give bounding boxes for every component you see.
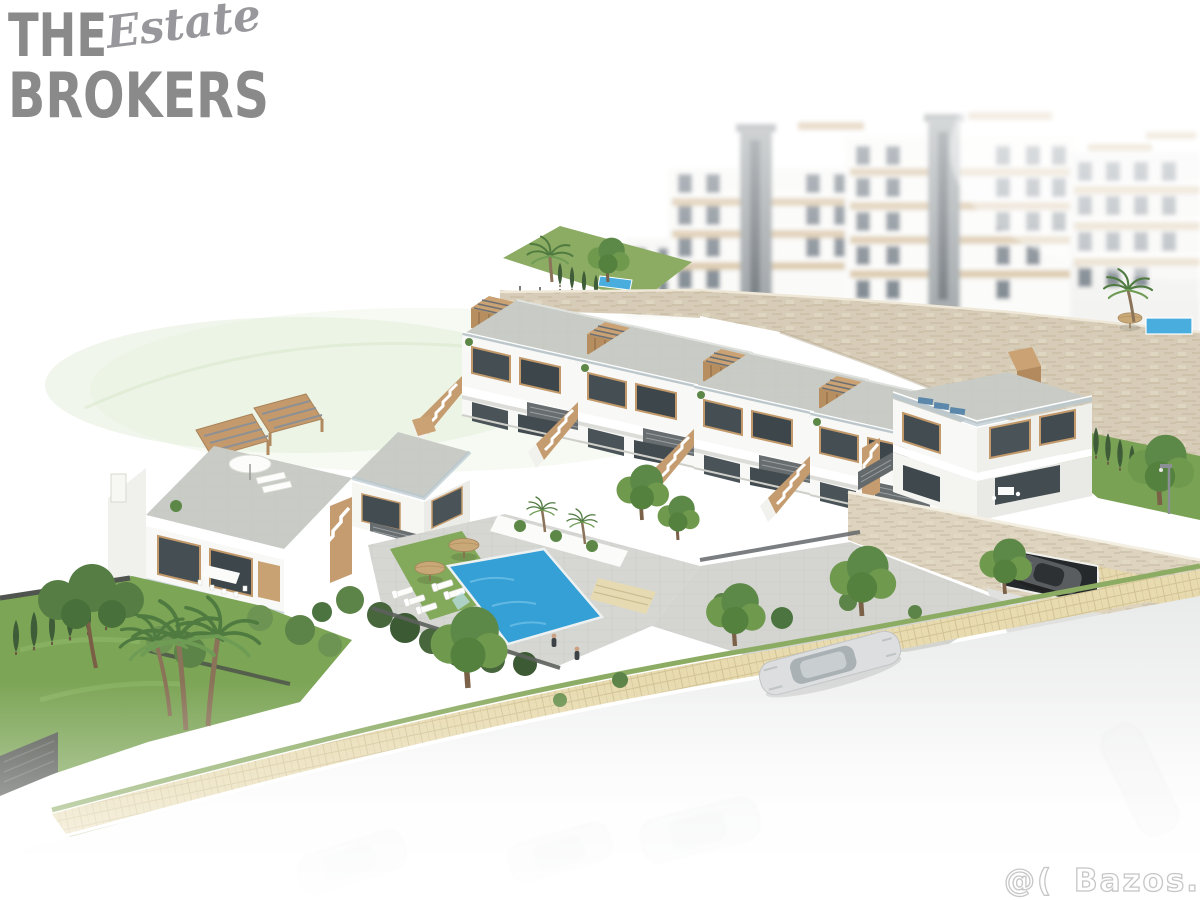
walking-person bbox=[575, 647, 580, 660]
walking-person bbox=[552, 634, 557, 647]
bazos-watermark: @( Bazos.cz bbox=[1004, 863, 1200, 899]
screenshot-root: THE Estate BROKERS @( Bazos.cz bbox=[0, 0, 1200, 900]
sun-umbrella bbox=[415, 562, 445, 585]
rendered-scene: THE Estate BROKERS @( Bazos.cz bbox=[0, 0, 1200, 900]
background-pool bbox=[1146, 318, 1192, 334]
logo-word-brokers: BROKERS bbox=[8, 60, 269, 132]
bazos-watermark-prefix: @( bbox=[1004, 863, 1053, 899]
estate-brokers-logo: THE Estate BROKERS bbox=[8, 0, 269, 133]
logo-word-estate: Estate bbox=[101, 0, 264, 59]
sun-umbrella bbox=[449, 539, 479, 562]
sun-umbrella bbox=[1118, 313, 1142, 331]
bazos-watermark-site: Bazos.cz bbox=[1074, 863, 1200, 899]
